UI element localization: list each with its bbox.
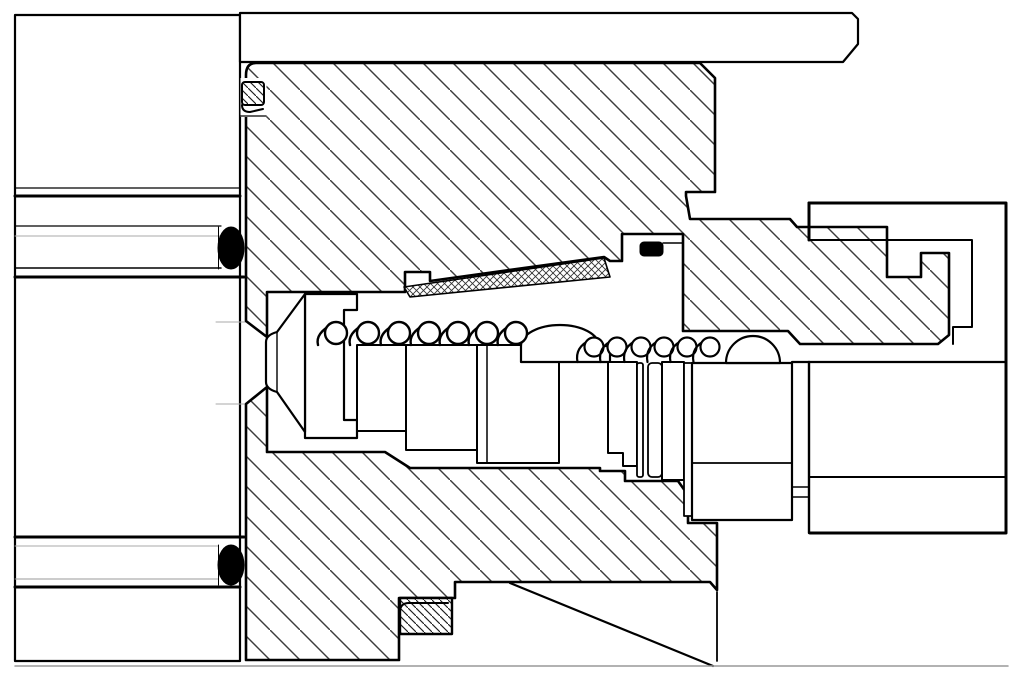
manifold-block xyxy=(15,15,240,661)
technical-drawing xyxy=(0,0,1024,681)
retaining-ring-a xyxy=(637,363,643,477)
bore-curve-edge xyxy=(510,583,713,666)
spring-left-coil-5 xyxy=(447,322,469,344)
poppet xyxy=(266,294,305,432)
spool-segment-6 xyxy=(692,363,792,520)
retaining-ring-b xyxy=(648,363,662,477)
spring-cup xyxy=(305,294,357,438)
spring-left-coil-4 xyxy=(418,322,440,344)
cad-viewport xyxy=(0,0,1024,681)
spool-dome-right xyxy=(726,336,780,363)
spring-right-coil-6 xyxy=(701,338,720,357)
spool-oring xyxy=(640,242,663,256)
spring-left-coil-1 xyxy=(325,322,347,344)
spool-segment-2 xyxy=(406,345,477,450)
oring-upper xyxy=(218,227,244,269)
oring-lower xyxy=(218,545,244,585)
spool-segment-5 xyxy=(662,362,684,480)
spring-left-coil-2 xyxy=(357,322,379,344)
parts-layer xyxy=(15,13,1008,666)
upper-backup-ring xyxy=(242,82,264,105)
top-cover-strip xyxy=(240,13,858,62)
spool-sleeve-strip xyxy=(684,363,692,516)
spool-segment-4 xyxy=(608,362,637,466)
spring-left-coil-7 xyxy=(505,322,527,344)
spool-segment-1 xyxy=(357,345,406,431)
wedge-step-edge xyxy=(405,272,430,281)
spring-left-coil-6 xyxy=(476,322,498,344)
spring-left-coil-3 xyxy=(388,322,410,344)
